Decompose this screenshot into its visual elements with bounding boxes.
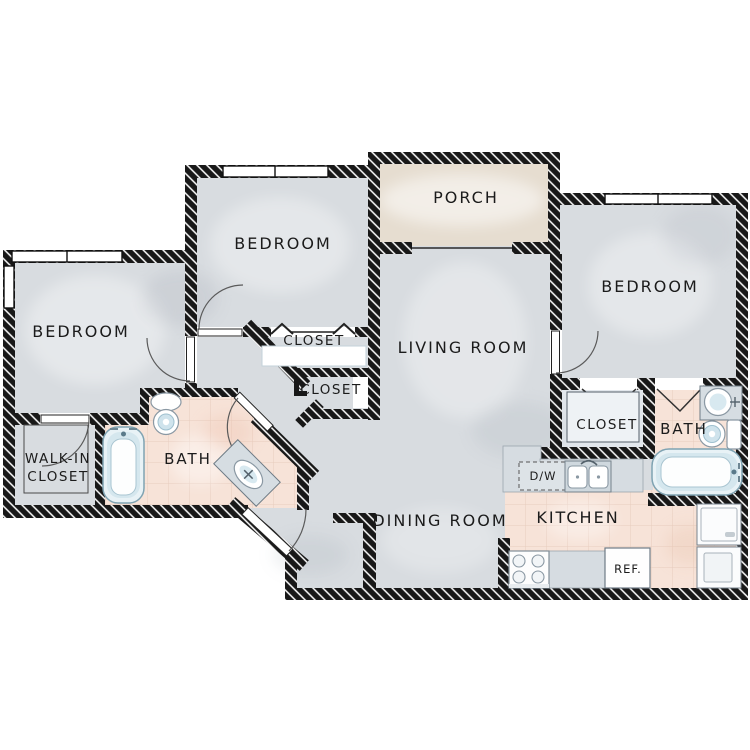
label-kitchen: KITCHEN	[536, 508, 619, 527]
bathtub-icon	[103, 427, 144, 503]
wall	[368, 152, 380, 420]
label-refrigerator: REF.	[614, 562, 642, 576]
wall	[512, 242, 550, 254]
washer-icon	[697, 547, 741, 588]
door-leaf	[41, 415, 89, 423]
label-porch: PORCH	[433, 188, 499, 207]
door-gap	[580, 378, 637, 390]
wall	[288, 368, 368, 377]
label-bath-right: BATH	[660, 420, 708, 438]
wall	[548, 152, 560, 254]
label-walk-in-closet-line1: WALK-IN	[25, 451, 91, 467]
window	[4, 266, 14, 308]
dryer-icon	[697, 504, 741, 545]
wall	[3, 505, 248, 518]
floor-plan-drawing: PORCH BEDROOM BEDROOM BEDROOM LIVING ROO…	[0, 0, 750, 750]
closet-shelf	[262, 346, 366, 366]
bathtub-icon	[652, 449, 742, 495]
stove-icon	[509, 551, 549, 588]
door-gap	[655, 378, 703, 390]
kitchen-counter	[549, 551, 607, 588]
label-walk-in-closet-line2: CLOSET	[27, 469, 88, 485]
door-leaf	[552, 331, 560, 374]
label-living-room: LIVING ROOM	[398, 338, 529, 357]
label-bedroom-left: BEDROOM	[32, 322, 130, 341]
label-closet-hall-lower: CLOSET	[300, 382, 361, 398]
label-dishwasher: D/W	[529, 469, 556, 483]
wall	[285, 588, 748, 600]
kitchen-sink-icon	[565, 461, 611, 492]
door-leaf	[198, 329, 242, 336]
sink-icon	[700, 386, 742, 420]
label-closet-hall-upper: CLOSET	[283, 333, 344, 349]
wall	[297, 463, 309, 510]
wall	[380, 242, 412, 254]
door-leaf	[187, 337, 195, 382]
label-closet-right: CLOSET	[576, 417, 637, 433]
wall	[498, 538, 510, 590]
wall	[540, 447, 655, 459]
label-dining-room: DINING ROOM	[372, 511, 507, 530]
floor-plan: PORCH BEDROOM BEDROOM BEDROOM LIVING ROO…	[0, 0, 750, 750]
label-bath-left: BATH	[164, 450, 212, 468]
label-bedroom-right: BEDROOM	[601, 277, 699, 296]
label-bedroom-top: BEDROOM	[234, 234, 332, 253]
wall	[372, 152, 560, 164]
